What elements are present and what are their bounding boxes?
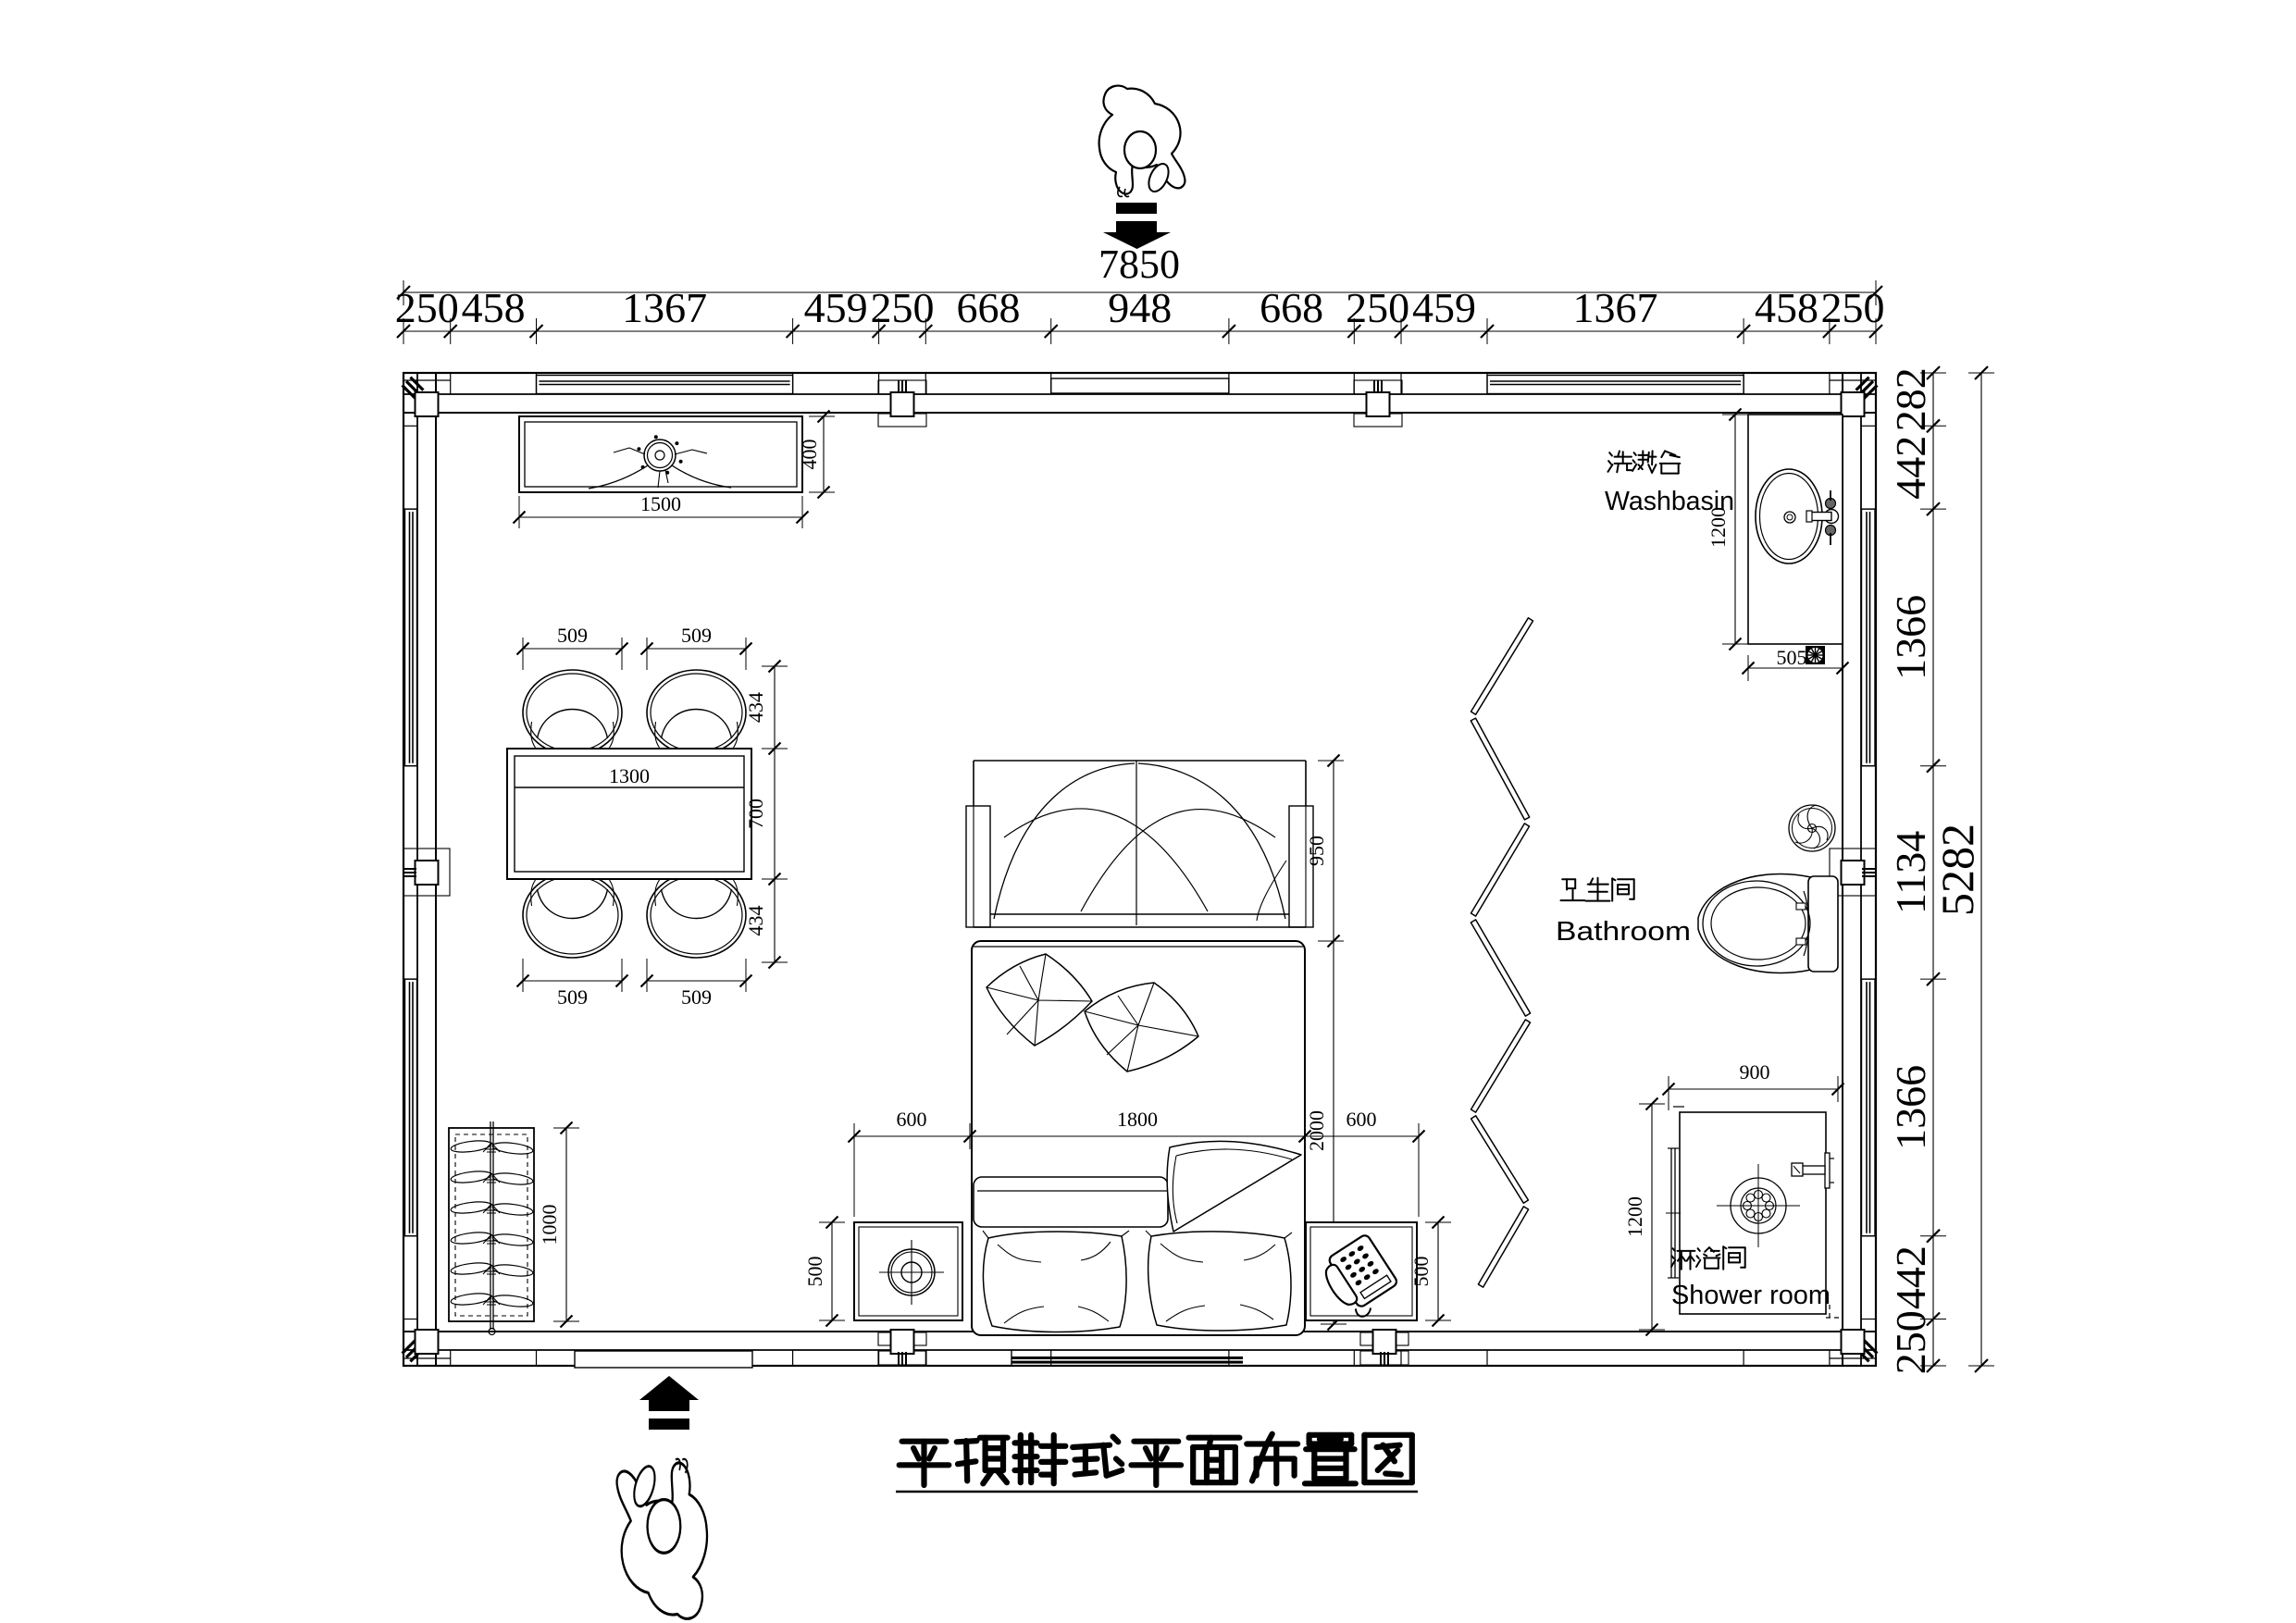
svg-text:7850: 7850 [1098, 242, 1180, 287]
svg-text:250: 250 [395, 284, 459, 331]
svg-text:500: 500 [1409, 1257, 1433, 1287]
svg-text:400: 400 [798, 440, 821, 470]
svg-text:2000: 2000 [1305, 1110, 1328, 1151]
svg-text:1366: 1366 [1887, 1065, 1934, 1150]
svg-text:Shower room: Shower room [1671, 1281, 1831, 1310]
svg-text:509: 509 [557, 624, 588, 647]
svg-text:600: 600 [1347, 1108, 1377, 1131]
svg-text:509: 509 [681, 985, 712, 1009]
svg-text:505: 505 [1777, 646, 1807, 669]
svg-text:900: 900 [1740, 1060, 1770, 1084]
svg-text:500: 500 [803, 1257, 826, 1287]
svg-text:Bathroom: Bathroom [1556, 917, 1691, 947]
svg-text:948: 948 [1108, 284, 1172, 331]
svg-text:250: 250 [1887, 1310, 1934, 1374]
svg-text:1800: 1800 [1117, 1108, 1158, 1131]
svg-text:250: 250 [871, 284, 935, 331]
svg-text:509: 509 [557, 985, 588, 1009]
svg-text:458: 458 [462, 284, 526, 331]
svg-text:700: 700 [744, 799, 767, 829]
svg-text:459: 459 [804, 284, 868, 331]
svg-text:459: 459 [1412, 284, 1476, 331]
svg-text:1200: 1200 [1623, 1196, 1646, 1237]
svg-text:1367: 1367 [1573, 284, 1658, 331]
svg-text:668: 668 [957, 284, 1021, 331]
svg-text:458: 458 [1755, 284, 1818, 331]
svg-text:1500: 1500 [640, 492, 681, 515]
svg-text:1000: 1000 [538, 1205, 561, 1245]
svg-text:1367: 1367 [622, 284, 707, 331]
svg-text:250: 250 [1346, 284, 1409, 331]
svg-text:668: 668 [1260, 284, 1323, 331]
svg-text:442: 442 [1887, 1245, 1934, 1309]
svg-text:434: 434 [744, 906, 767, 936]
svg-text:282: 282 [1887, 367, 1934, 431]
svg-text:442: 442 [1887, 436, 1934, 500]
svg-text:250: 250 [1821, 284, 1885, 331]
svg-text:950: 950 [1305, 836, 1328, 866]
svg-text:1134: 1134 [1887, 831, 1934, 914]
svg-text:Washbasin: Washbasin [1605, 487, 1734, 516]
svg-text:509: 509 [681, 624, 712, 647]
svg-text:1300: 1300 [609, 764, 650, 787]
svg-text:5282: 5282 [1931, 824, 1983, 916]
svg-text:434: 434 [744, 692, 767, 723]
svg-text:600: 600 [897, 1108, 927, 1131]
svg-text:1366: 1366 [1887, 595, 1934, 680]
